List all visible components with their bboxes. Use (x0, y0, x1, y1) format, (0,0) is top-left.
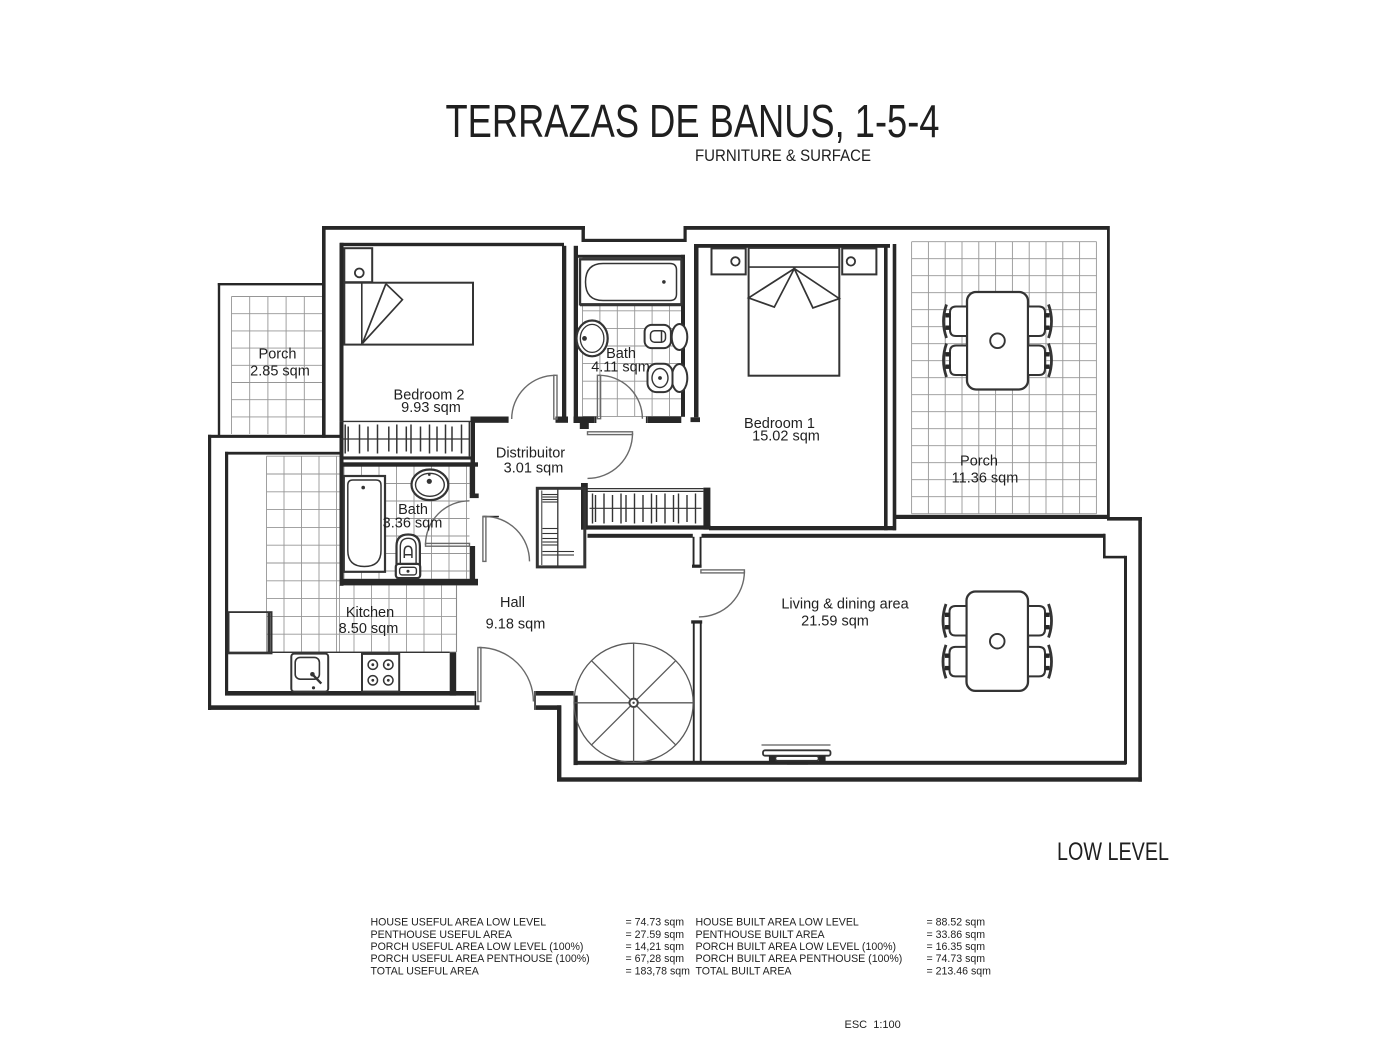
svg-text:15.02 sqm: 15.02 sqm (752, 429, 820, 445)
svg-text:HOUSE BUILT AREA LOW LEVEL: HOUSE BUILT AREA LOW LEVEL (696, 917, 859, 929)
svg-text:Distribuitor: Distribuitor (496, 446, 565, 462)
svg-text:= 16.35 sqm: = 16.35 sqm (927, 941, 986, 953)
svg-text:3.01 sqm: 3.01 sqm (504, 461, 564, 477)
svg-text:ESC 1:100: ESC 1:100 (845, 1019, 901, 1031)
svg-text:3.36 sqm: 3.36 sqm (383, 516, 443, 532)
svg-text:PENTHOUSE BUILT AREA: PENTHOUSE BUILT AREA (696, 929, 826, 941)
svg-text:LOW LEVEL: LOW LEVEL (1057, 838, 1169, 866)
svg-text:Hall: Hall (500, 595, 525, 611)
svg-text:2.85 sqm: 2.85 sqm (250, 364, 310, 380)
svg-text:11.36 sqm: 11.36 sqm (952, 471, 1019, 487)
svg-text:PORCH BUILT AREA LOW LEVEL (10: PORCH BUILT AREA LOW LEVEL (100%) (696, 941, 897, 953)
svg-text:4.11 sqm: 4.11 sqm (591, 360, 650, 376)
svg-text:Living & dining area: Living & dining area (781, 597, 909, 613)
svg-text:9.93 sqm: 9.93 sqm (401, 400, 461, 416)
svg-text:= 27.59 sqm: = 27.59 sqm (626, 929, 685, 941)
svg-text:TERRAZAS DE BANUS, 1-5-4: TERRAZAS DE BANUS, 1-5-4 (446, 95, 940, 147)
svg-text:Porch: Porch (960, 454, 998, 470)
svg-text:PORCH BUILT AREA PENTHOUSE (10: PORCH BUILT AREA PENTHOUSE (100%) (696, 953, 903, 965)
svg-text:TOTAL USEFUL AREA: TOTAL USEFUL AREA (371, 965, 480, 977)
svg-text:PORCH USEFUL AREA LOW LEVEL (1: PORCH USEFUL AREA LOW LEVEL (100%) (371, 941, 584, 953)
svg-text:= 14,21 sqm: = 14,21 sqm (626, 941, 685, 953)
svg-text:Kitchen: Kitchen (346, 605, 394, 621)
svg-text:TOTAL BUILT AREA: TOTAL BUILT AREA (696, 965, 793, 977)
svg-text:FURNITURE & SURFACE: FURNITURE & SURFACE (695, 146, 871, 165)
svg-text:= 33.86 sqm: = 33.86 sqm (927, 929, 986, 941)
svg-text:= 67,28 sqm: = 67,28 sqm (626, 953, 685, 965)
svg-text:= 88.52 sqm: = 88.52 sqm (927, 917, 986, 929)
svg-text:= 74.73 sqm: = 74.73 sqm (927, 953, 986, 965)
svg-text:9.18 sqm: 9.18 sqm (486, 617, 546, 633)
svg-text:= 213.46 sqm: = 213.46 sqm (927, 965, 992, 977)
svg-text:HOUSE USEFUL AREA LOW LEVEL: HOUSE USEFUL AREA LOW LEVEL (371, 917, 547, 929)
svg-text:8.50 sqm: 8.50 sqm (339, 621, 399, 637)
svg-text:21.59 sqm: 21.59 sqm (801, 614, 869, 630)
svg-text:= 74.73 sqm: = 74.73 sqm (626, 917, 685, 929)
svg-text:Porch: Porch (259, 347, 297, 363)
svg-text:= 183,78 sqm: = 183,78 sqm (626, 965, 691, 977)
svg-text:PENTHOUSE USEFUL AREA: PENTHOUSE USEFUL AREA (371, 929, 513, 941)
svg-text:PORCH USEFUL AREA PENTHOUSE (1: PORCH USEFUL AREA PENTHOUSE (100%) (371, 953, 590, 965)
